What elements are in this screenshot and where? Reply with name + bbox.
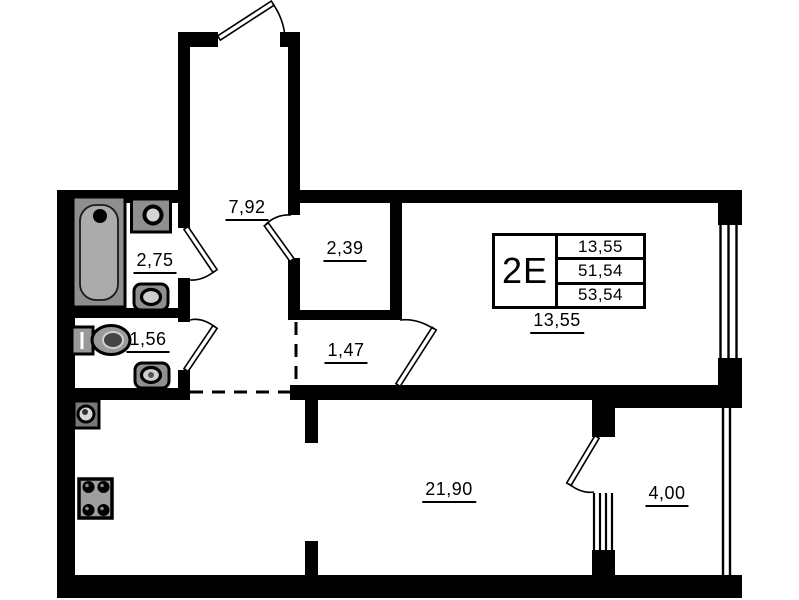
unit-total-area: 53,54: [558, 285, 643, 306]
wc-door: [184, 319, 217, 371]
bathroom-door: [184, 227, 217, 280]
closet-door: [264, 215, 294, 262]
entrance-door: [218, 1, 285, 40]
window-main: [721, 225, 737, 358]
room-door: [396, 320, 436, 387]
walls: [57, 32, 742, 598]
unit-living-area: 13,55: [558, 236, 643, 257]
bidet: [134, 284, 168, 310]
balcony-door: [567, 436, 599, 493]
window-balcony-block: [594, 493, 612, 550]
unit-type-label: 2E: [495, 236, 555, 306]
unit-info-box: 2E 13,55 51,54 53,54: [492, 233, 646, 309]
room-area-hall-upper: 7,92: [225, 198, 268, 221]
room-area-closet: 2,39: [323, 239, 366, 262]
opening-dashed-lines: [190, 322, 296, 392]
bathtub: [73, 197, 125, 307]
room-area-room: 13,55: [530, 311, 584, 334]
room-area-hall-lower: 1,47: [324, 341, 367, 364]
wc-sink: [135, 363, 169, 388]
room-area-balcony: 4,00: [645, 484, 688, 507]
bathroom-sink: [132, 199, 171, 232]
kitchen-sink: [74, 401, 99, 428]
unit-area: 51,54: [558, 260, 643, 281]
toilet: [72, 326, 130, 355]
room-area-wc: 1,56: [126, 330, 169, 353]
room-area-bathroom: 2,75: [133, 251, 176, 274]
room-area-kitchen-living: 21,90: [422, 480, 476, 503]
balcony-rail: [723, 408, 730, 576]
stove: [79, 479, 112, 518]
floor-plan-drawing: [0, 0, 799, 600]
floor-plan: 7,92 2,39 2,75 1,56 1,47 13,55 21,90 4,0…: [0, 0, 799, 600]
